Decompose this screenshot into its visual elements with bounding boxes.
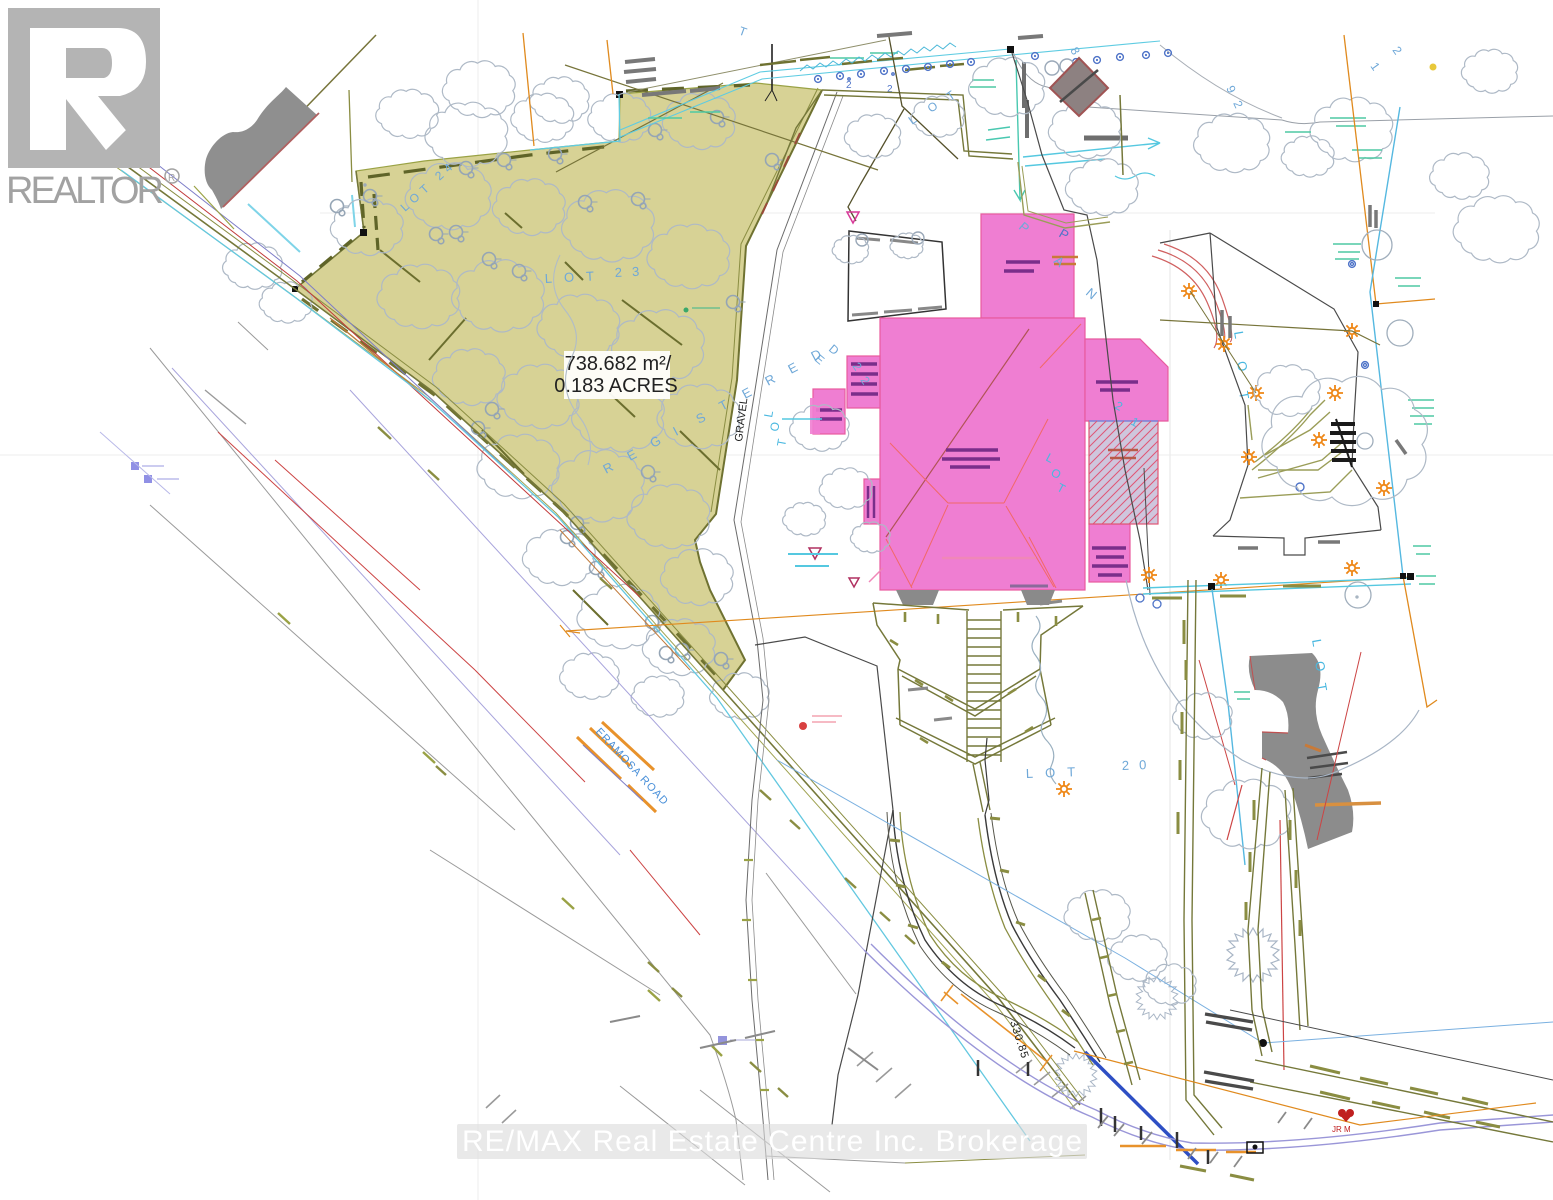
- svg-text:738.682 m²/: 738.682 m²/: [565, 353, 672, 375]
- svg-text:RE/MAX Real Estate Centre Inc.: RE/MAX Real Estate Centre Inc. Brokerage: [462, 1125, 1082, 1158]
- svg-text:JR M: JR M: [1332, 1125, 1351, 1134]
- svg-text:LOT: LOT: [1026, 764, 1088, 781]
- svg-text:20: 20: [1122, 757, 1157, 773]
- svg-text:REALTOR: REALTOR: [6, 170, 164, 212]
- svg-text:23: 23: [614, 263, 649, 280]
- svg-text:2: 2: [846, 80, 852, 91]
- svg-text:2: 2: [887, 84, 893, 95]
- svg-text:R: R: [168, 173, 175, 184]
- svg-text:0.183 ACRES: 0.183 ACRES: [554, 375, 677, 397]
